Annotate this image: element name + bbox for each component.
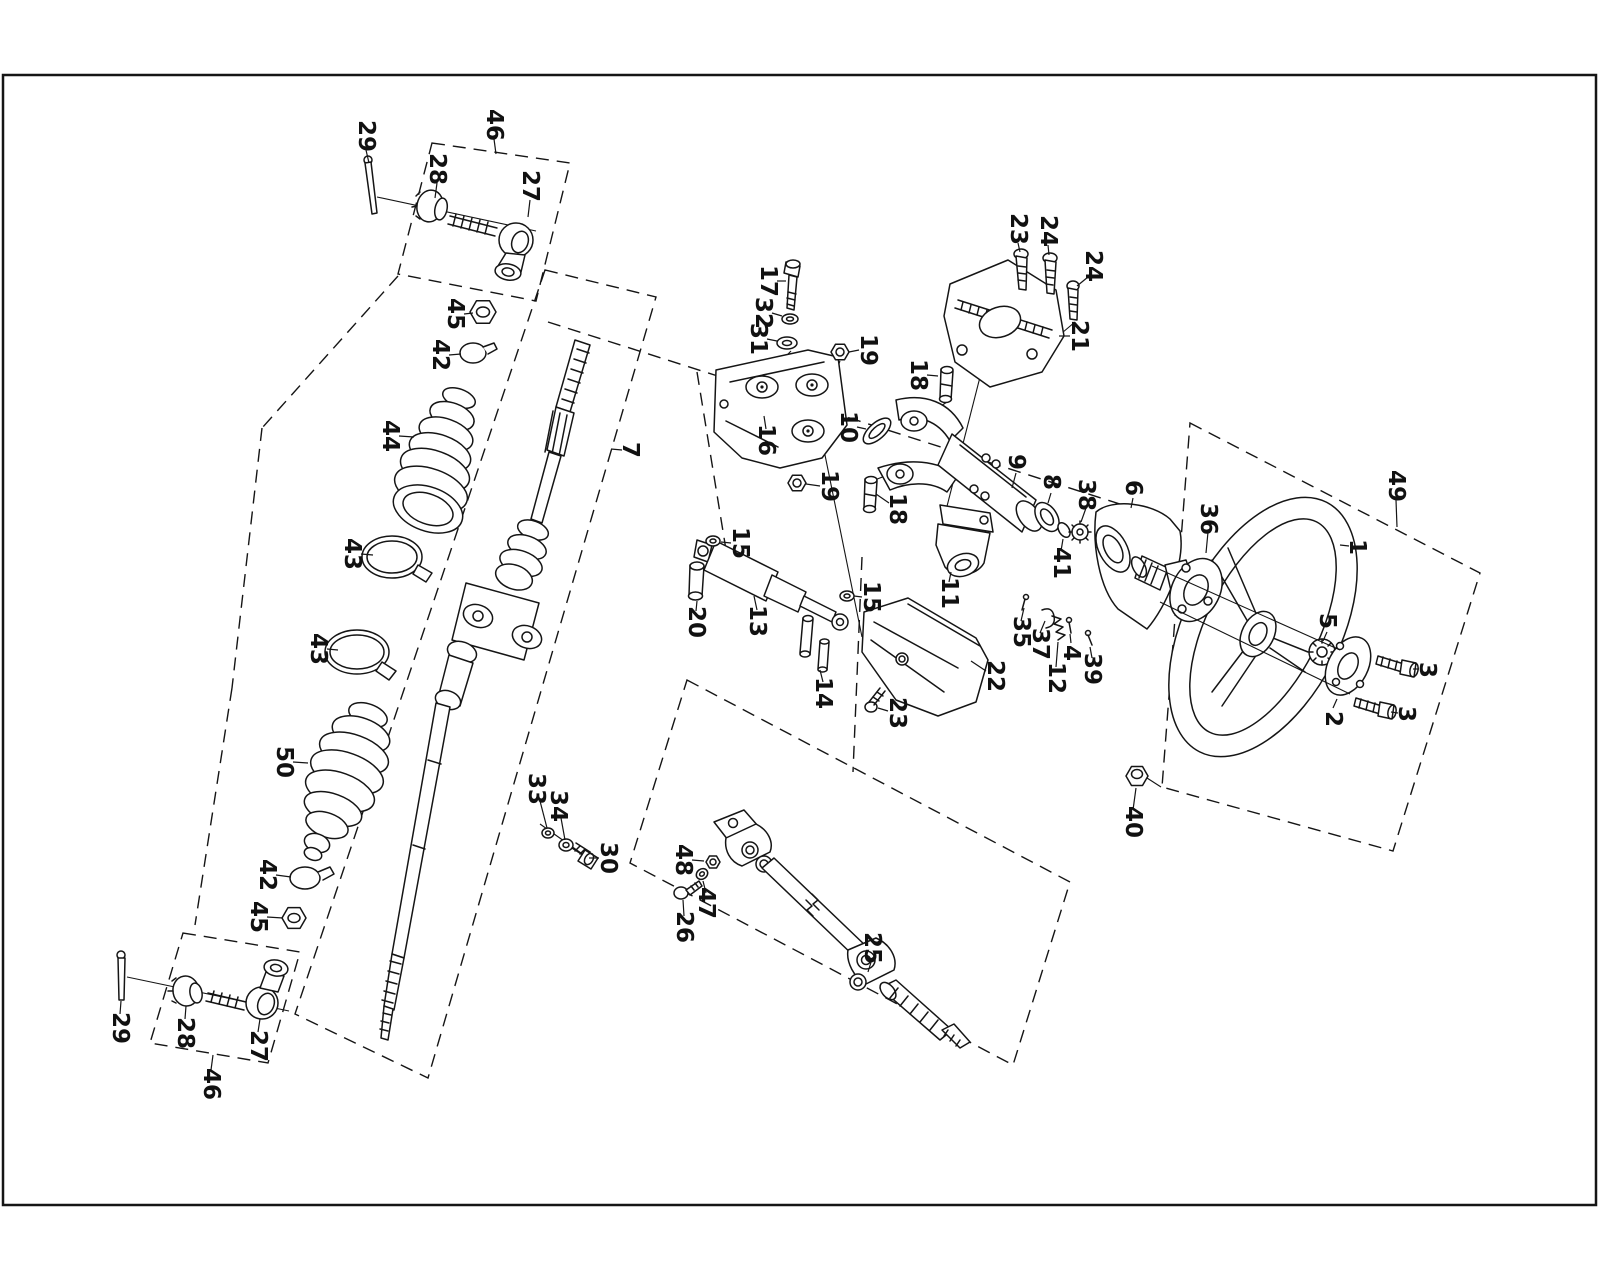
part-label-45: 45 [442,298,468,330]
washer-15-right [840,591,854,601]
part-label-12: 12 [1043,662,1069,694]
part-label-18: 18 [905,359,931,391]
part-label-19: 19 [816,470,842,502]
label-leader-line [1333,699,1337,708]
part-label-17: 17 [755,265,781,297]
part-label-43: 43 [339,538,365,570]
bolt-3-upper [1376,656,1419,678]
part-label-48: 48 [670,844,696,876]
part-label-15: 15 [858,581,884,613]
cotter-pin-29-bottom [117,951,125,1000]
hub-nut-40 [1126,767,1148,786]
lock-washer-34 [559,839,573,851]
part-label-6: 6 [1120,480,1146,496]
part-label-23: 23 [1005,213,1031,245]
part-label-15: 15 [727,527,753,559]
part-label-3: 3 [1414,662,1440,678]
part-label-18: 18 [884,493,910,525]
screw-23-bottom [865,688,885,712]
washer-31 [777,337,797,349]
bolt-3-lower [1354,698,1397,720]
kit-box-tie-rod-top [398,143,570,301]
part-label-20: 20 [683,606,709,638]
part-label-41: 41 [1048,547,1074,579]
part-label-25: 25 [859,932,885,964]
part-label-5: 5 [1314,613,1340,629]
lock-nut-45-lower [282,908,306,929]
pin-39 [1086,631,1093,646]
dashed-boundary-line [262,276,398,428]
part-label-10: 10 [835,411,861,443]
clevis-pin-20 [689,562,705,600]
part-label-44: 44 [377,420,403,452]
part-label-45: 45 [245,901,271,933]
part-label-38: 38 [1073,479,1099,511]
part-label-8: 8 [1038,474,1064,490]
flange-nut-19-lower [788,475,806,491]
part-label-29: 29 [353,120,379,152]
part-label-7: 7 [617,442,643,458]
tie-rod-end-27-top [448,214,533,282]
part-label-22: 22 [982,660,1008,692]
part-label-42: 42 [254,859,280,891]
washer-32 [782,314,798,324]
part-label-11: 11 [936,577,962,609]
part-label-30: 30 [595,842,621,874]
label-leader-line [528,200,530,217]
pin-4 [1067,618,1072,634]
label-leader-line [1070,634,1071,643]
bellows-boot-44 [387,384,478,542]
boot-clamp-43-lower [325,630,396,680]
part-label-43: 43 [305,633,331,665]
speed-nut-38 [1069,521,1091,543]
bolt-30 [572,843,598,869]
diagram-page: 2946282745424474343504245292827463334301… [0,0,1600,1280]
part-label-27: 27 [517,170,543,202]
steering-damper-13 [694,540,848,630]
part-label-16: 16 [753,424,779,456]
part-label-24: 24 [1035,215,1061,247]
bolt-17 [784,260,800,310]
pin-35 [1022,595,1029,611]
pin-14-b [818,639,829,672]
part-label-1: 1 [1344,539,1370,555]
part-label-23: 23 [884,697,910,729]
pin-14-a [800,616,813,658]
mounting-bracket-16 [714,350,847,468]
part-label-21: 21 [1066,320,1092,352]
ignition-switch-11 [936,505,993,580]
part-label-39: 39 [1079,653,1105,685]
castle-nut-28 [412,188,449,225]
part-label-19: 19 [855,334,881,366]
part-label-46: 46 [481,109,507,141]
steering-wheel-1 [1130,467,1396,787]
cotter-pin-29-top [364,156,377,214]
castle-nut-28-bottom [168,974,204,1008]
boot-clamp-43-upper [362,536,432,582]
part-label-24: 24 [1080,250,1106,282]
part-label-31: 31 [745,323,771,355]
boot-clamp-42-top [460,343,497,363]
part-label-28: 28 [424,153,450,185]
lock-nut-45-top [470,301,496,324]
part-label-26: 26 [671,911,697,943]
label-leader-line [1396,500,1397,527]
dowel-pin-18-upper [940,367,954,403]
part-label-46: 46 [198,1068,224,1100]
part-label-28: 28 [172,1017,198,1049]
exploded-diagram-canvas: 2946282745424474343504245292827463334301… [0,0,1600,1280]
part-label-36: 36 [1195,503,1221,535]
part-label-27: 27 [245,1030,271,1062]
part-label-13: 13 [744,605,770,637]
part-label-29: 29 [107,1012,133,1044]
flange-nut-19-upper [831,344,849,360]
part-label-40: 40 [1120,806,1146,838]
washer-15-left [706,536,720,546]
part-label-9: 9 [1003,454,1029,470]
part-label-50: 50 [271,746,297,778]
part-label-34: 34 [545,790,571,822]
bellows-boot-50 [300,698,395,863]
intermediate-shaft-25 [714,810,970,1048]
boot-clamp-42-lower [290,867,334,889]
part-label-14: 14 [810,677,836,709]
dashed-boundary-line [232,428,262,688]
tie-rod-end-27-bottom [206,958,289,1019]
part-label-37: 37 [1027,628,1053,660]
label-leader-line [1206,532,1208,553]
dashed-boundary-line [195,688,232,925]
label-leader-line [1048,493,1051,503]
part-label-42: 42 [427,339,453,371]
part-label-3: 3 [1393,706,1419,722]
nut-48 [706,856,720,868]
dowel-pin-18-lower [864,477,878,513]
part-label-49: 49 [1383,470,1409,502]
part-label-2: 2 [1320,711,1346,727]
axis-line [1147,778,1161,787]
washer-33 [542,828,554,838]
column-lower-cover-22 [862,598,988,716]
screw-24-b [1067,281,1079,320]
